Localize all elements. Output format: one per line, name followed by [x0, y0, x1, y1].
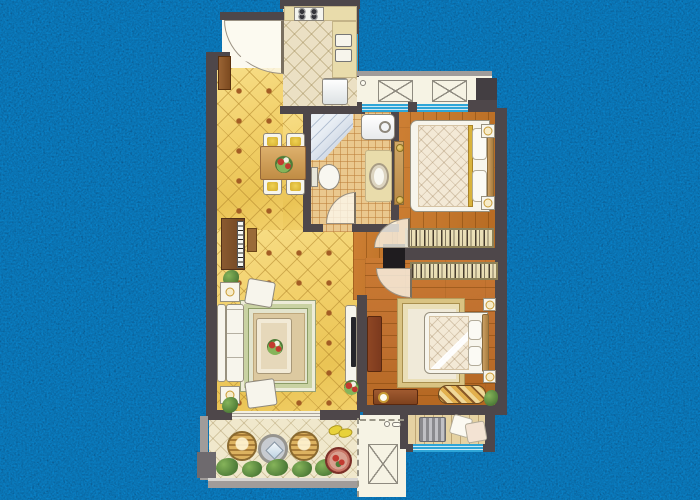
- balcony-chair-2: [289, 431, 319, 461]
- chair-cushion: [267, 182, 278, 191]
- armchair-top: [244, 278, 276, 308]
- washstand: [365, 150, 392, 202]
- side-table-lamp-top: [220, 282, 240, 302]
- lamp-icon: [484, 199, 493, 208]
- rear-cushion-2: [464, 420, 487, 443]
- bedroom2-bed: [424, 312, 490, 374]
- knob-icon: [396, 144, 404, 152]
- piano-bench: [247, 228, 257, 252]
- lamp-icon: [226, 288, 235, 297]
- double-sink: [334, 34, 354, 64]
- clock-icon: [378, 392, 389, 403]
- piano-keys: [237, 221, 244, 268]
- dining-chair-3: [263, 178, 282, 195]
- dining-table: [260, 146, 306, 180]
- washing-machine: [361, 114, 395, 140]
- faucet-symbol: [384, 420, 402, 428]
- bedroom2-dresser: [373, 389, 418, 405]
- bedroom1-window-2: [417, 104, 468, 112]
- bedroom1-window-1: [362, 104, 408, 112]
- drain-symbol-icon: [360, 80, 366, 86]
- dining-chair-4: [286, 178, 305, 195]
- entry-top-wall: [220, 12, 284, 20]
- coffee-table-flowers: [267, 339, 283, 355]
- toilet-bowl: [318, 164, 340, 190]
- sofa-back: [217, 304, 226, 382]
- floor-plan-scene: [0, 0, 700, 500]
- toilet: [311, 164, 341, 190]
- balcony-chair-1: [227, 431, 257, 461]
- piano: [221, 218, 245, 270]
- bedroom2-bottom-wall: [363, 405, 497, 415]
- refrigerator: [322, 78, 348, 105]
- kitchen-bath-wall: [280, 106, 365, 114]
- flower-pot: [344, 380, 359, 395]
- balcony-sliding-door: [232, 411, 320, 419]
- window-row-seg-c: [468, 100, 497, 112]
- ac-unit-bottom: [368, 444, 398, 484]
- tv-wall: [357, 295, 367, 412]
- lamp-icon: [485, 300, 494, 309]
- ac-platform-rail: [357, 71, 492, 76]
- bedroom1-nightstand-top: [481, 124, 495, 138]
- chair-cushion: [267, 137, 278, 146]
- chair-cushion: [290, 137, 301, 146]
- washstand-basin: [369, 163, 389, 190]
- window-row-seg-b: [408, 102, 417, 112]
- bedroom1-nightstand-bottom: [481, 196, 495, 210]
- bed2-duvet: [429, 316, 469, 370]
- bed2-pillow-1: [468, 320, 482, 340]
- platform-dashed-left: [357, 418, 359, 497]
- bedroom2-nightstand-top: [483, 298, 496, 311]
- bedroom2-wardrobe: [410, 262, 498, 280]
- living-bottom-wall-r: [320, 410, 360, 420]
- bed2-headboard: [482, 314, 489, 372]
- bed2-pillow-2: [468, 346, 482, 366]
- snack-table: [325, 447, 352, 474]
- bedroom1-dresser: [394, 141, 404, 205]
- faucet-circle-icon: [384, 421, 390, 427]
- sofa-seats: [226, 304, 244, 382]
- left-outer-wall: [206, 70, 217, 412]
- tv: [351, 317, 356, 367]
- gas-stove: [294, 7, 324, 21]
- bedroom1-wardrobe: [405, 228, 494, 248]
- washer-drum: [379, 121, 391, 133]
- rear-balcony-window: [413, 444, 483, 452]
- toilet-tank: [311, 167, 318, 187]
- bed1-duvet: [418, 125, 470, 207]
- chair-cushion: [290, 182, 301, 191]
- rear-window-cap-r: [483, 444, 489, 452]
- ac-unit-top-1: [378, 80, 413, 102]
- bedroom2-desk: [367, 316, 382, 372]
- lamp-icon: [485, 372, 494, 381]
- flower-centerpiece: [275, 155, 293, 173]
- bedroom2-nightstand-bottom: [483, 370, 496, 383]
- lamp-icon: [484, 127, 493, 136]
- knob-icon: [396, 196, 404, 204]
- bedroom2-bench: [438, 385, 486, 404]
- coffee-table: [256, 318, 292, 374]
- armchair-bottom: [244, 378, 277, 409]
- balcony-bottom-rail: [208, 478, 358, 488]
- balcony-corner-block: [197, 452, 216, 478]
- sink-basin-top: [335, 34, 352, 47]
- ac-unit-top-2: [432, 80, 467, 102]
- bathroom-bottom-wall-l: [303, 224, 323, 232]
- glass-top: [265, 441, 283, 459]
- shoe-cabinet: [218, 56, 231, 90]
- rear-balcony-rack: [419, 417, 446, 442]
- faucet-capsule-icon: [392, 422, 401, 427]
- sink-basin-bottom: [335, 49, 352, 62]
- rear-window-cap-l: [406, 444, 413, 452]
